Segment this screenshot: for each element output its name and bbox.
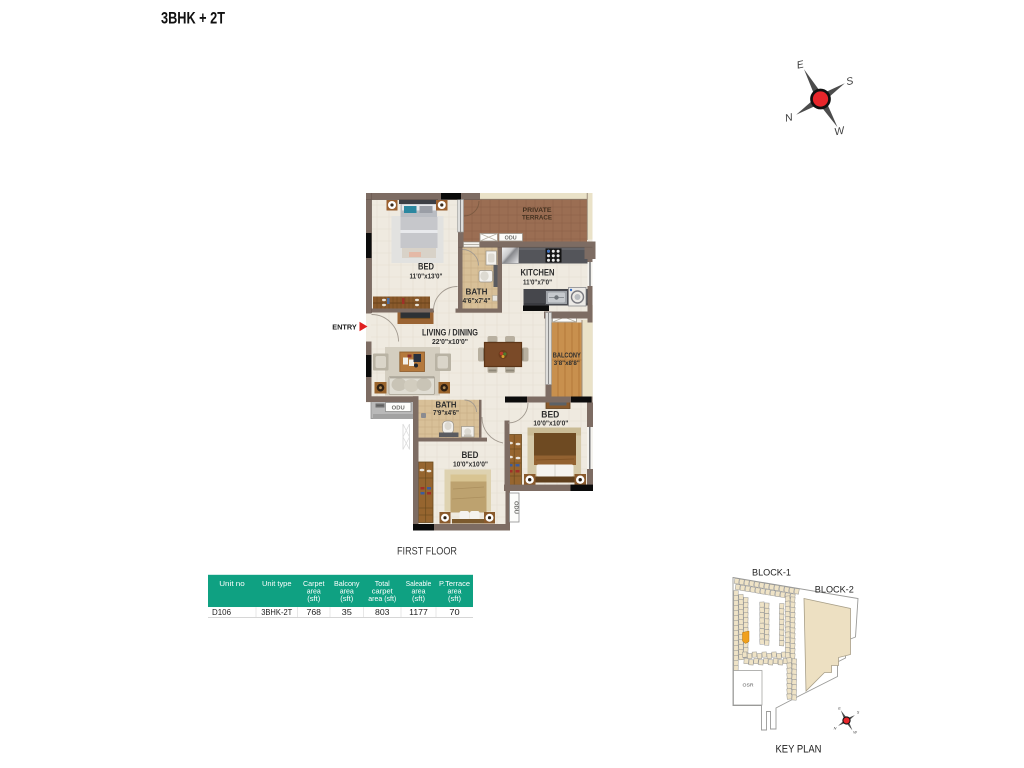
svg-text:ENTRY: ENTRY: [332, 322, 357, 331]
svg-text:E: E: [838, 707, 841, 711]
svg-text:10'0"x10'0": 10'0"x10'0": [533, 419, 568, 428]
svg-text:BED: BED: [462, 450, 479, 460]
svg-text:11'0"x7'0": 11'0"x7'0": [523, 278, 552, 287]
svg-text:(sft): (sft): [448, 594, 461, 603]
svg-text:KEY PLAN: KEY PLAN: [776, 744, 822, 756]
svg-text:KITCHEN: KITCHEN: [521, 268, 555, 278]
svg-text:22'0"x10'0": 22'0"x10'0": [432, 337, 468, 346]
svg-text:(sft): (sft): [340, 594, 353, 603]
svg-text:10'0"x10'0": 10'0"x10'0": [453, 460, 488, 469]
svg-text:W: W: [853, 731, 857, 735]
svg-text:3'8"x8'8": 3'8"x8'8": [554, 360, 580, 367]
svg-text:BALCONY: BALCONY: [553, 353, 581, 360]
svg-text:PRIVATE: PRIVATE: [523, 207, 553, 214]
svg-text:FIRST FLOOR: FIRST FLOOR: [397, 546, 457, 558]
svg-text:ODU: ODU: [505, 235, 517, 241]
svg-text:S: S: [857, 711, 860, 715]
svg-text:3BHK + 2T: 3BHK + 2T: [161, 9, 225, 27]
svg-text:803: 803: [375, 607, 390, 617]
svg-text:768: 768: [307, 607, 322, 617]
svg-text:Unit no: Unit no: [219, 579, 245, 588]
svg-text:area (sft): area (sft): [368, 594, 396, 603]
svg-text:D106: D106: [212, 607, 231, 617]
svg-text:(sft): (sft): [412, 594, 425, 603]
svg-text:TERRACE: TERRACE: [522, 215, 553, 222]
svg-text:N: N: [834, 727, 837, 731]
svg-text:BLOCK-1: BLOCK-1: [752, 568, 791, 578]
svg-text:4'6"x7'4": 4'6"x7'4": [463, 296, 491, 305]
svg-text:ODU: ODU: [513, 501, 519, 514]
svg-text:1177: 1177: [409, 607, 428, 617]
svg-text:(sft): (sft): [307, 594, 320, 603]
svg-text:3BHK-2T: 3BHK-2T: [261, 607, 292, 617]
svg-text:35: 35: [342, 607, 353, 617]
svg-text:ODU: ODU: [392, 405, 405, 411]
svg-text:BLOCK-2: BLOCK-2: [815, 585, 854, 595]
svg-text:Unit type: Unit type: [262, 579, 292, 588]
svg-text:OSR: OSR: [743, 683, 755, 688]
svg-text:LIVING / DINING: LIVING / DINING: [422, 328, 478, 338]
svg-text:11'0"x13'0": 11'0"x13'0": [410, 272, 443, 281]
svg-text:70: 70: [449, 607, 460, 617]
svg-text:BED: BED: [418, 262, 434, 272]
svg-text:7'9"x4'6": 7'9"x4'6": [433, 408, 459, 417]
